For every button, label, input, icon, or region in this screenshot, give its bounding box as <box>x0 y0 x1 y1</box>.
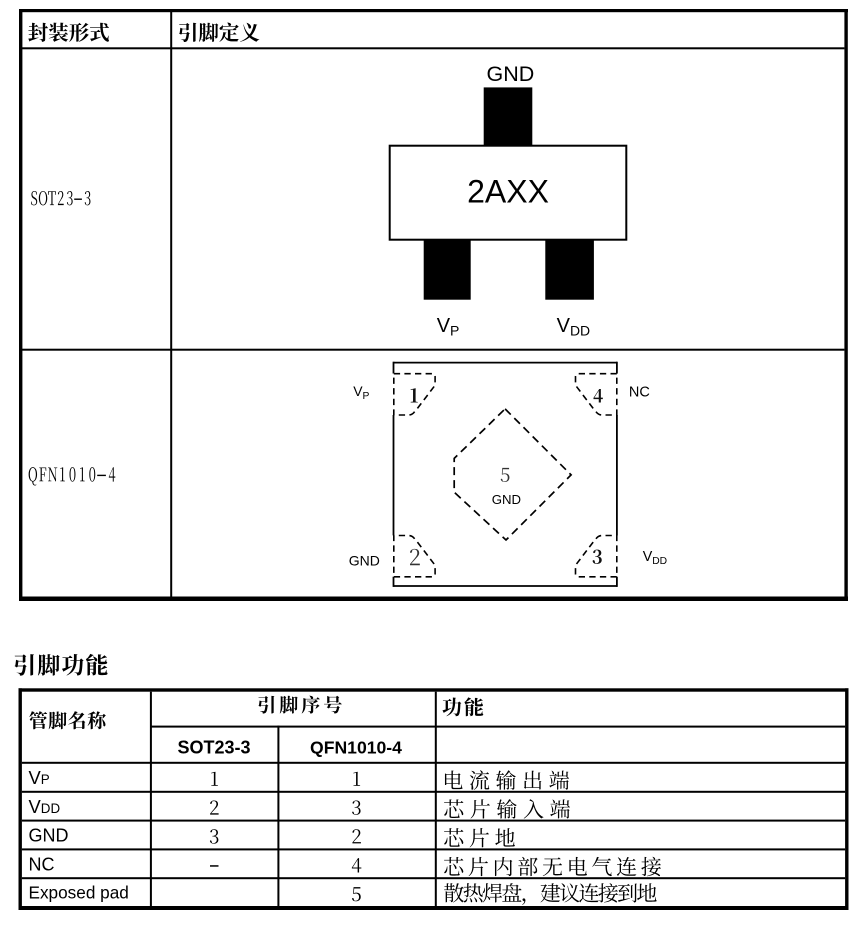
svg-text:SOT23-3: SOT23-3 <box>177 738 250 758</box>
svg-text:NC: NC <box>29 854 55 874</box>
svg-text:QFN1010-4: QFN1010-4 <box>310 738 402 758</box>
svg-text:2AXX: 2AXX <box>467 173 549 209</box>
svg-text:GND: GND <box>487 62 535 86</box>
svg-text:GND: GND <box>492 492 521 507</box>
svg-text:GND: GND <box>349 552 380 568</box>
svg-text:GND: GND <box>29 826 69 846</box>
svg-text:Exposed pad: Exposed pad <box>29 883 129 903</box>
svg-text:NC: NC <box>629 384 650 400</box>
